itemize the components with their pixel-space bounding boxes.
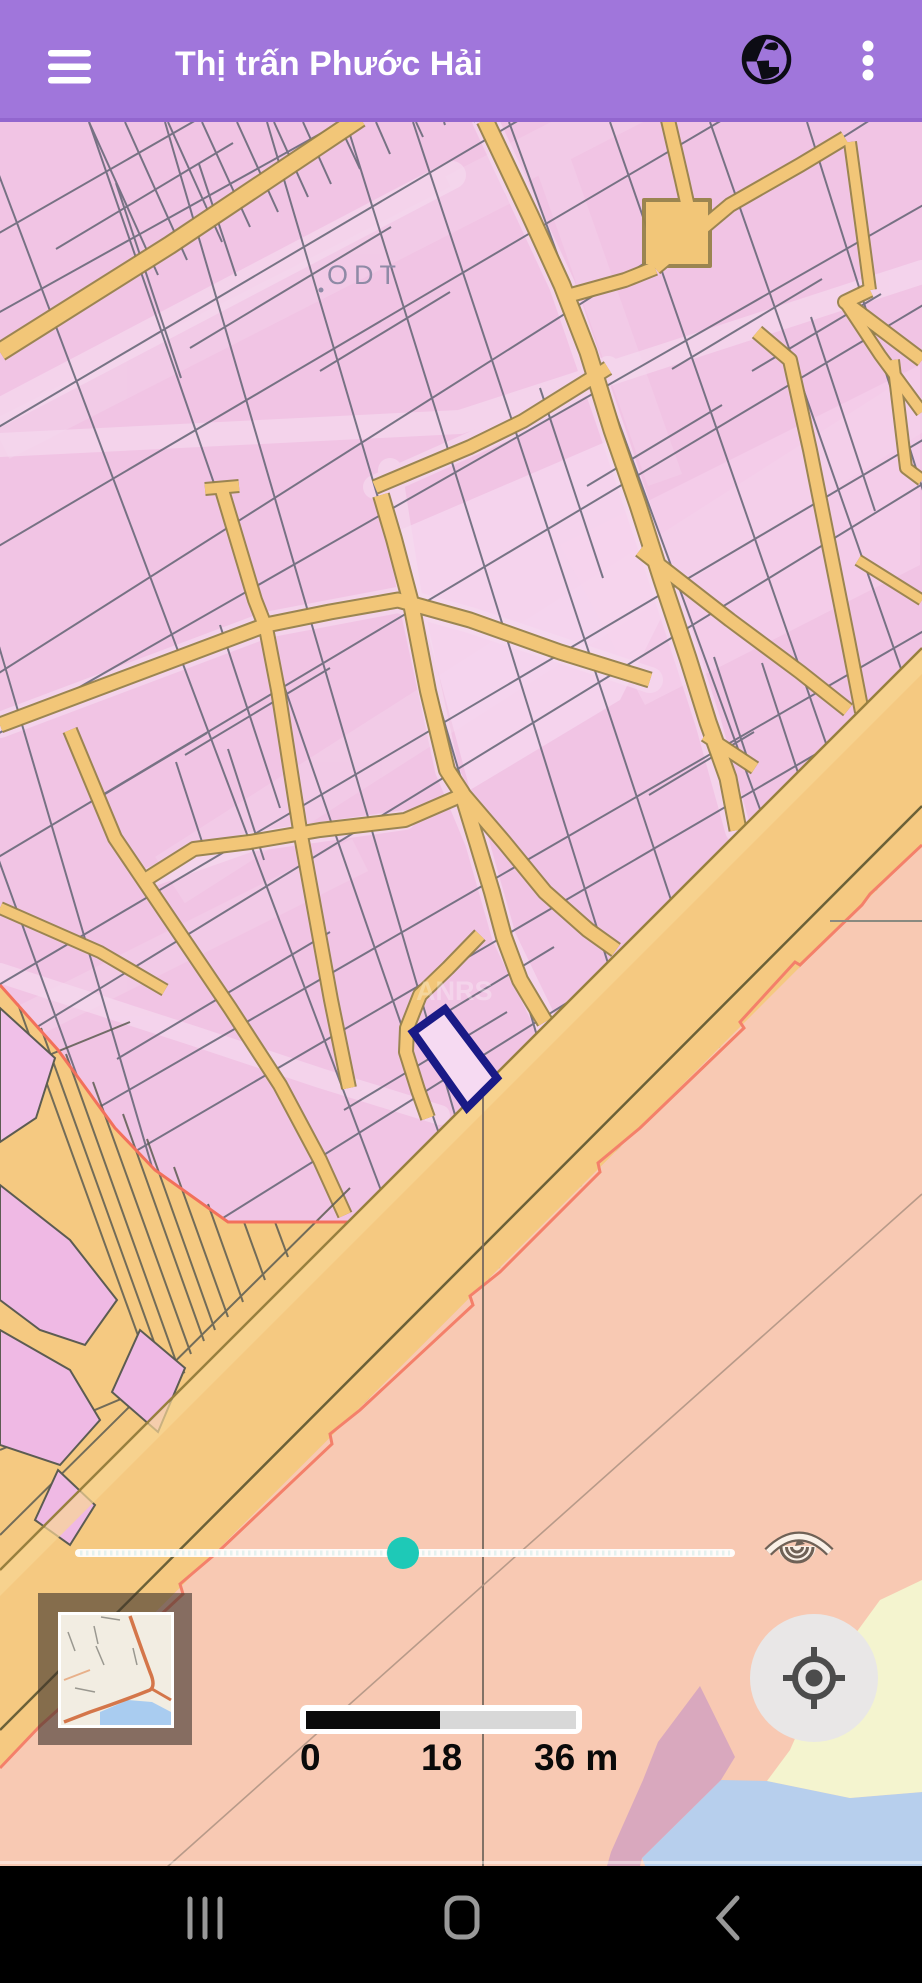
svg-text:ANRS: ANRS bbox=[416, 976, 493, 1006]
svg-text:Thị trấn Phước Hải: Thị trấn Phước Hải bbox=[175, 45, 483, 83]
svg-text:18: 18 bbox=[421, 1737, 462, 1778]
svg-text:0: 0 bbox=[300, 1737, 321, 1778]
svg-text:36 m: 36 m bbox=[534, 1737, 618, 1778]
svg-text:ODT: ODT bbox=[327, 260, 402, 290]
